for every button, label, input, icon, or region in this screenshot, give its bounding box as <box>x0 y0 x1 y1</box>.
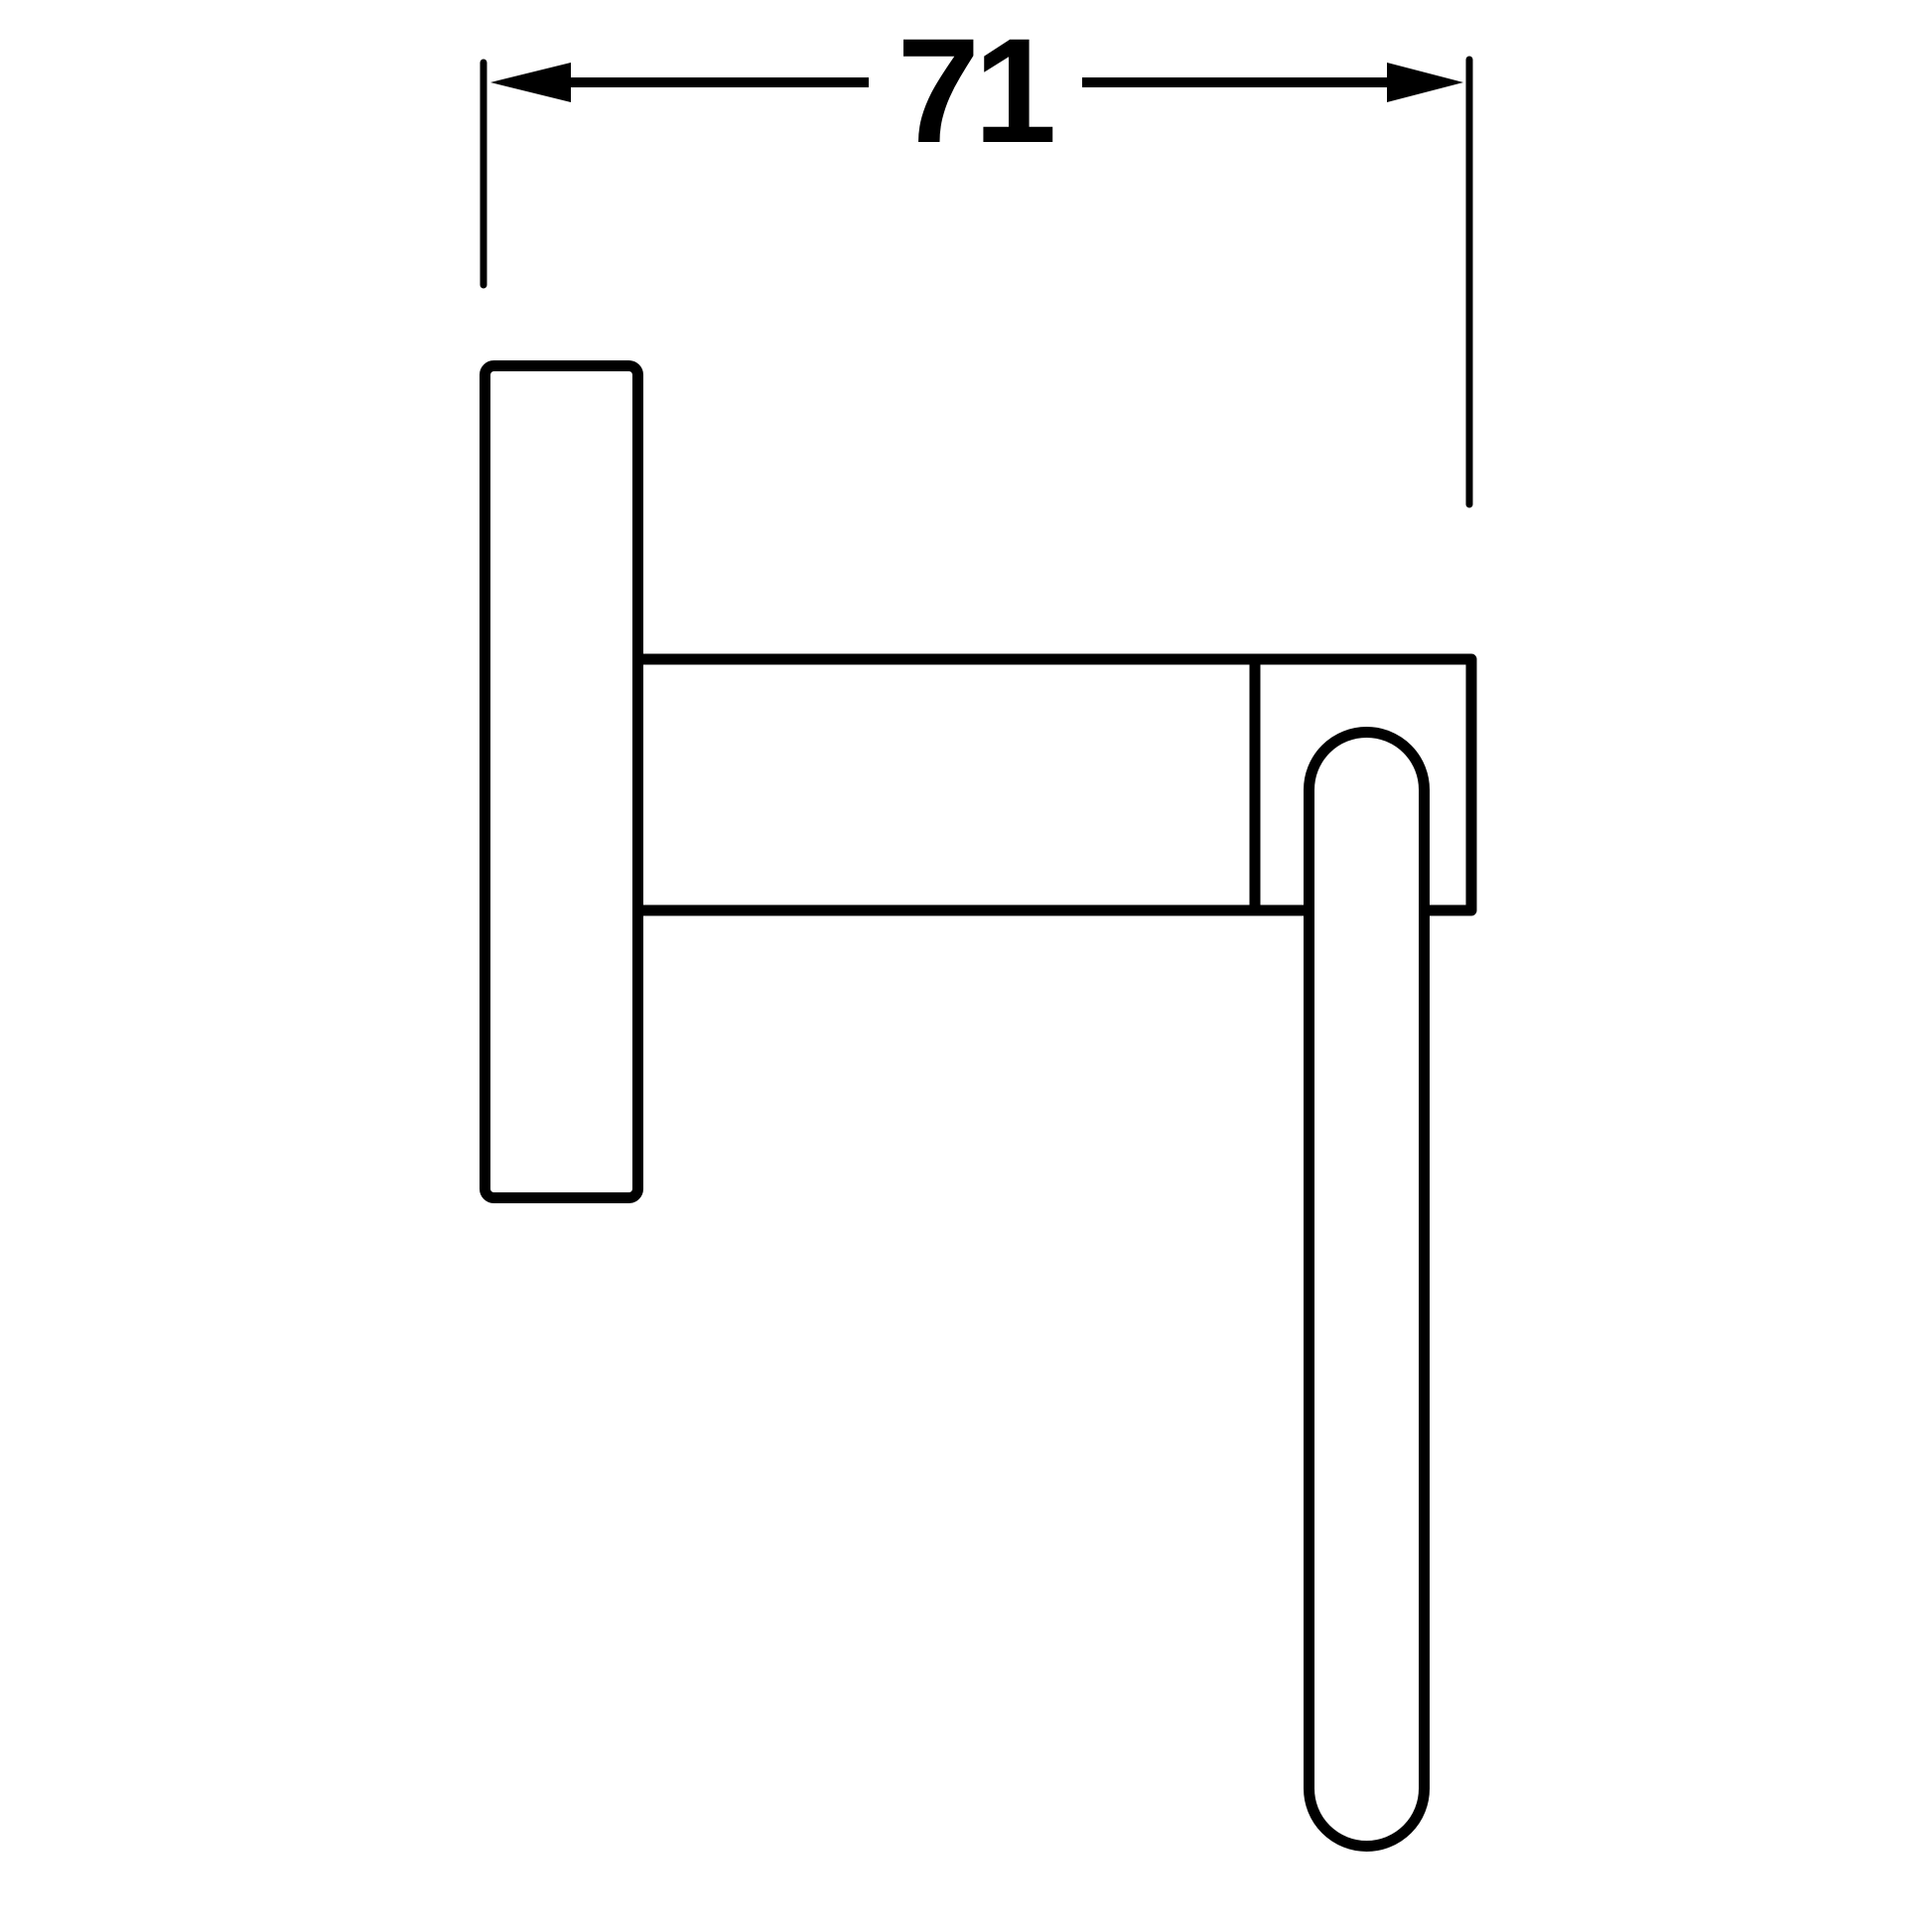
fixture-outline <box>485 366 1472 1847</box>
hanging-ring <box>1310 733 1425 1847</box>
dimension-value: 71 <box>897 7 1053 174</box>
technical-drawing: 71 <box>0 0 1932 1932</box>
wall-plate <box>485 366 638 1198</box>
dimension-arrow-right-icon <box>1387 63 1463 102</box>
dimension-arrow-left-icon <box>490 63 571 102</box>
drawing-canvas: 71 <box>0 0 1932 1932</box>
